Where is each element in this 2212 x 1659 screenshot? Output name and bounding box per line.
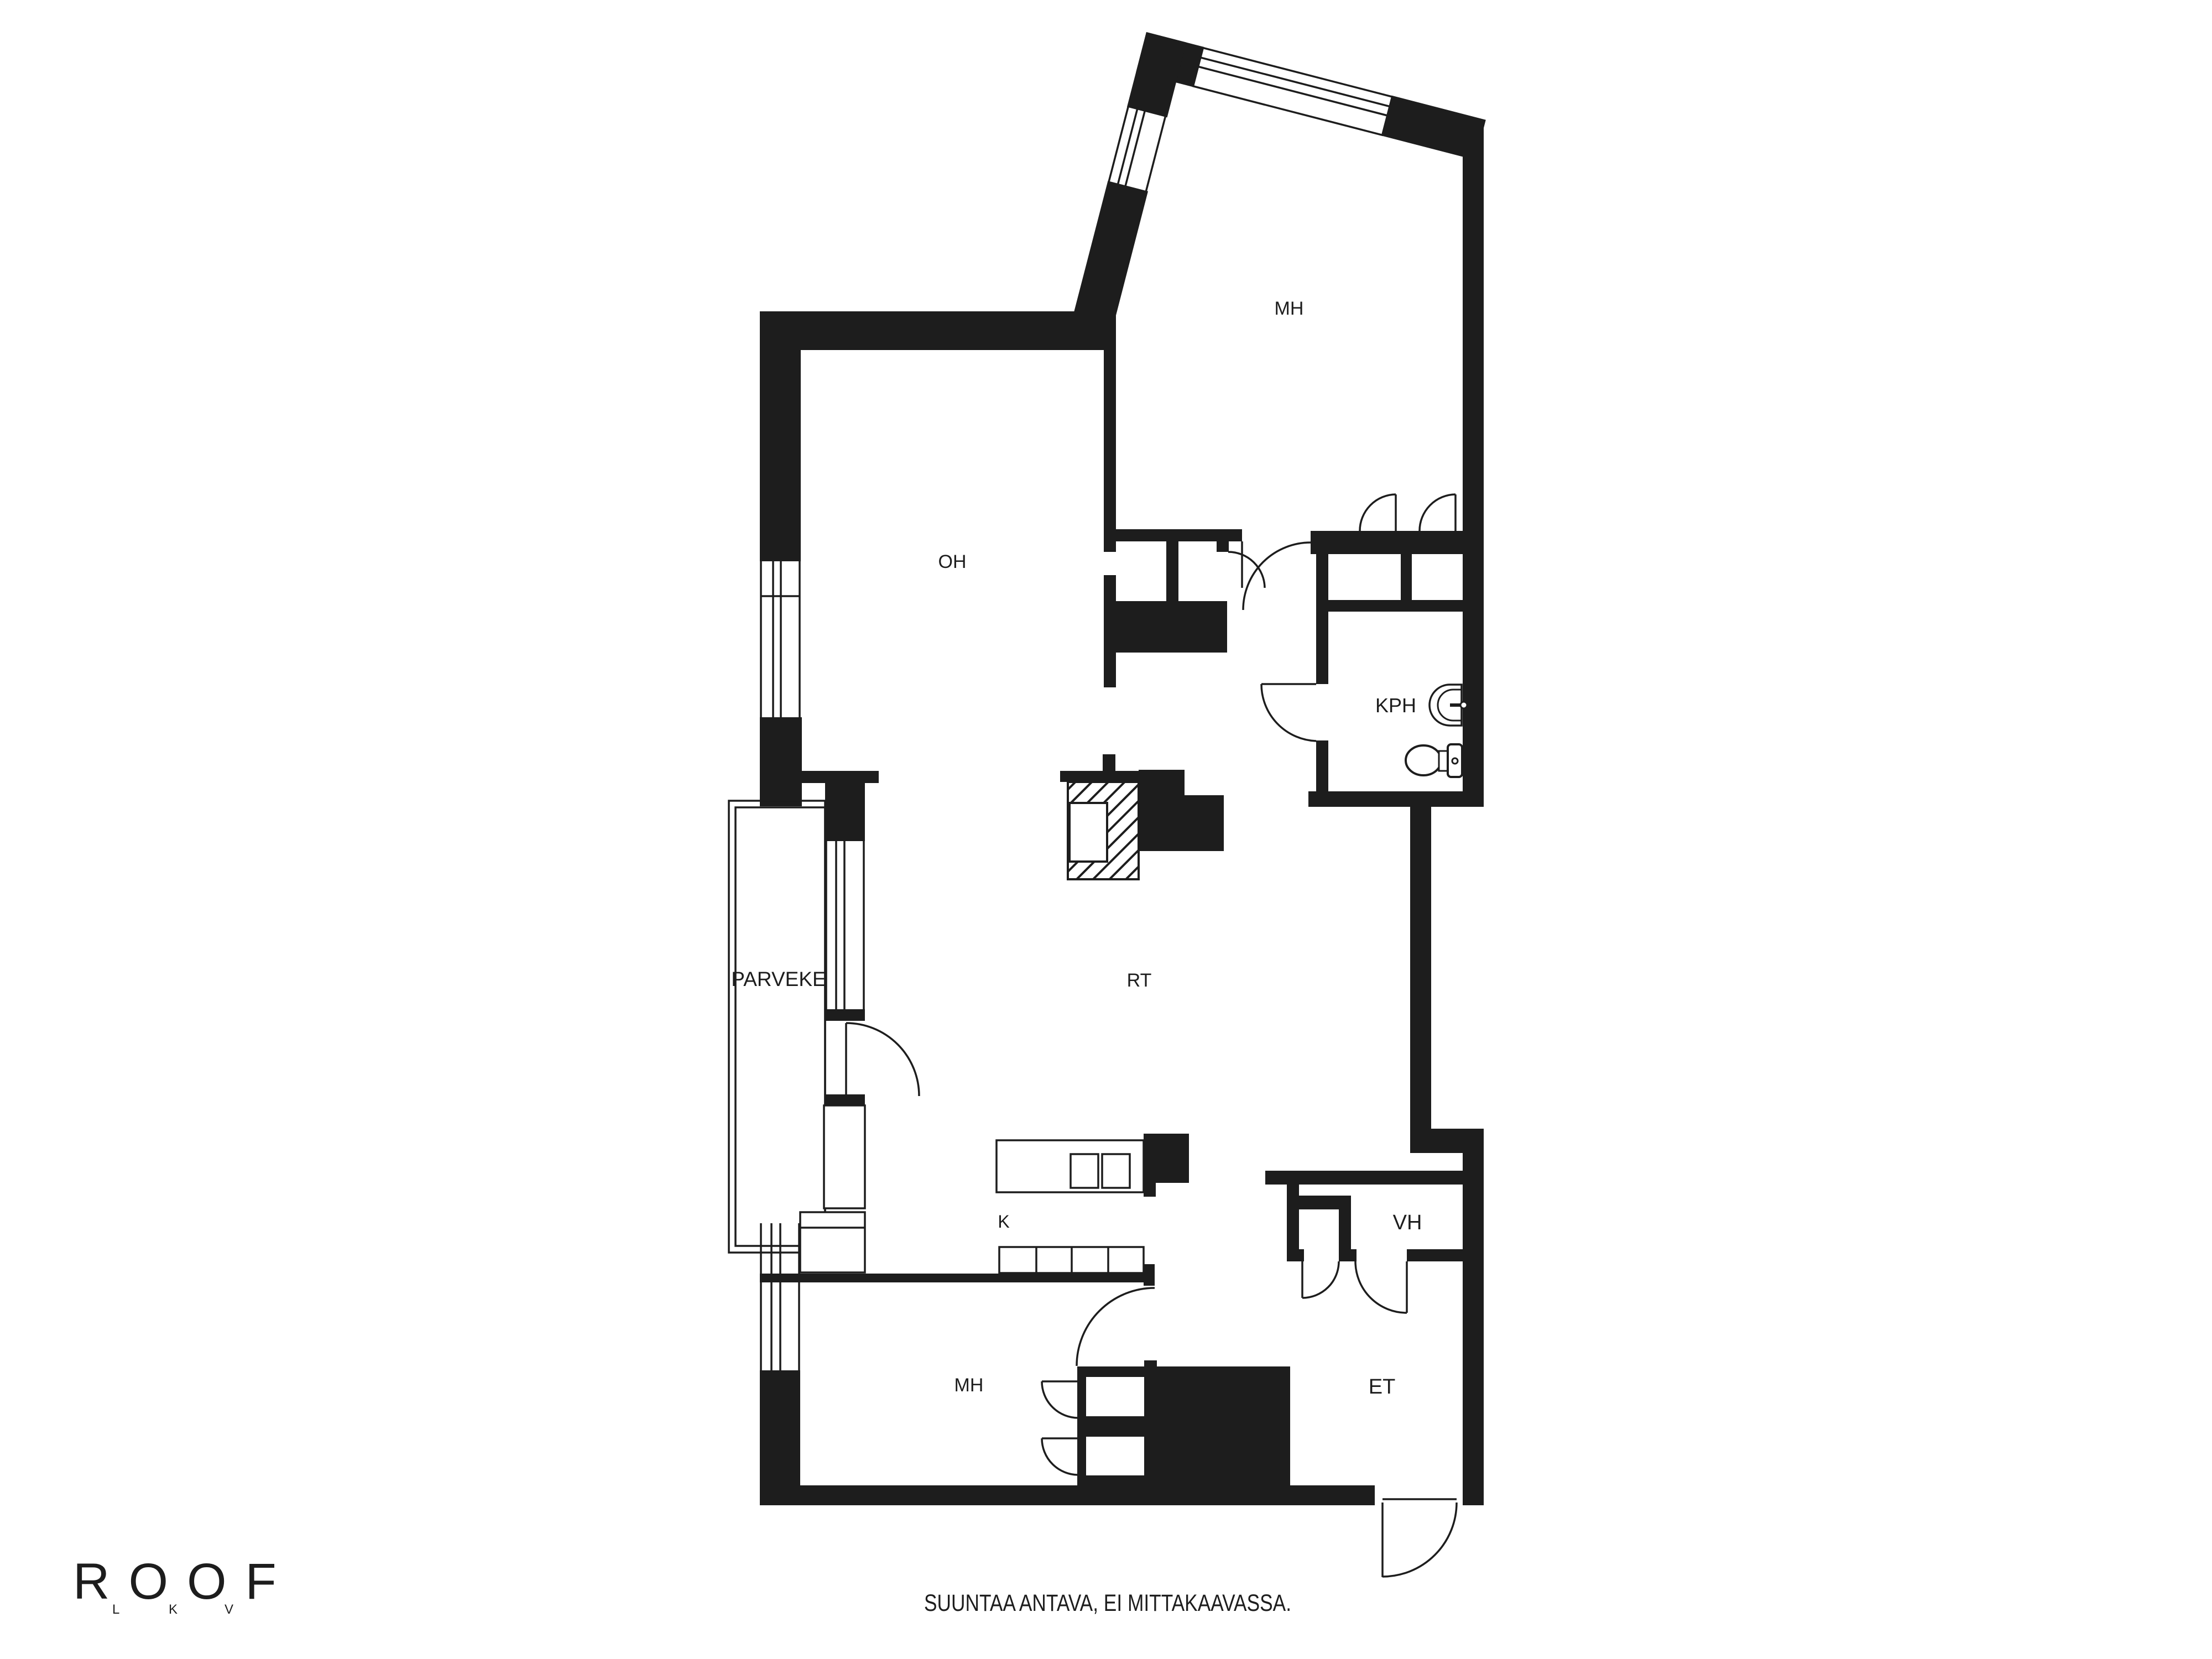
svg-text:OH: OH bbox=[938, 551, 967, 572]
svg-text:K: K bbox=[998, 1212, 1009, 1232]
svg-text:MH: MH bbox=[954, 1375, 984, 1396]
svg-text:ROOF: ROOF bbox=[73, 1553, 295, 1610]
svg-text:RT: RT bbox=[1127, 970, 1152, 991]
svg-text:K: K bbox=[169, 1602, 178, 1617]
svg-text:V: V bbox=[225, 1602, 233, 1617]
svg-text:ET: ET bbox=[1369, 1375, 1396, 1399]
svg-text:L: L bbox=[112, 1602, 119, 1617]
svg-text:PARVEKE: PARVEKE bbox=[731, 968, 826, 990]
svg-text:MH: MH bbox=[1275, 298, 1304, 319]
svg-text:SUUNTAA ANTAVA, EI MITTAKAAVAS: SUUNTAA ANTAVA, EI MITTAKAAVASSA. bbox=[924, 1590, 1291, 1616]
svg-text:VH: VH bbox=[1393, 1211, 1422, 1234]
svg-text:KPH: KPH bbox=[1375, 694, 1416, 717]
